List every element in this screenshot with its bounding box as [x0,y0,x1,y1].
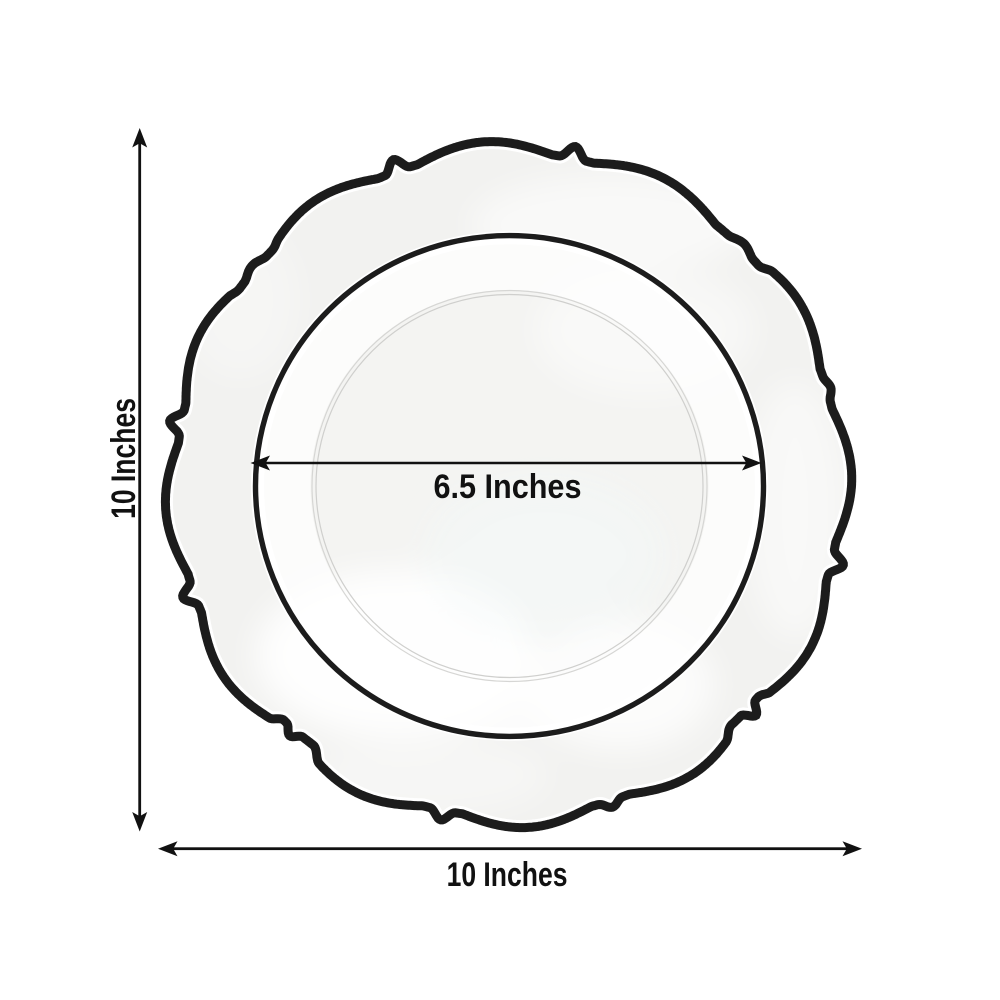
svg-text:10 Inches: 10 Inches [447,856,568,894]
svg-text:6.5 Inches: 6.5 Inches [434,468,582,506]
svg-text:10 Inches: 10 Inches [105,398,143,519]
